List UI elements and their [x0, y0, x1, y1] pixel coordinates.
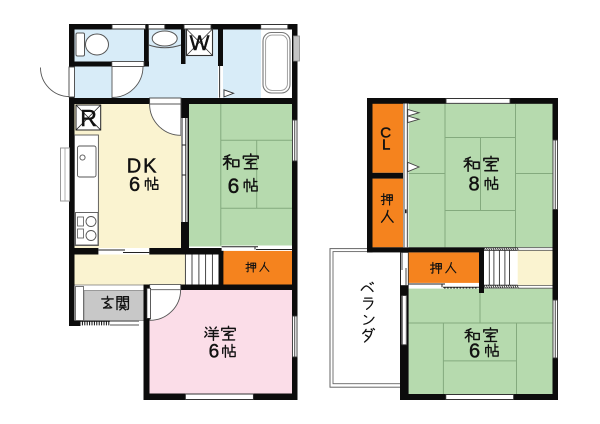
svg-text:L: L [382, 136, 390, 153]
svg-text:6: 6 [228, 175, 240, 198]
svg-text:6: 6 [129, 174, 140, 196]
svg-text:6: 6 [469, 341, 480, 363]
svg-text:6: 6 [209, 342, 220, 363]
svg-text:8: 8 [468, 174, 479, 196]
svg-text:R: R [80, 105, 97, 131]
svg-text:W: W [190, 32, 210, 55]
